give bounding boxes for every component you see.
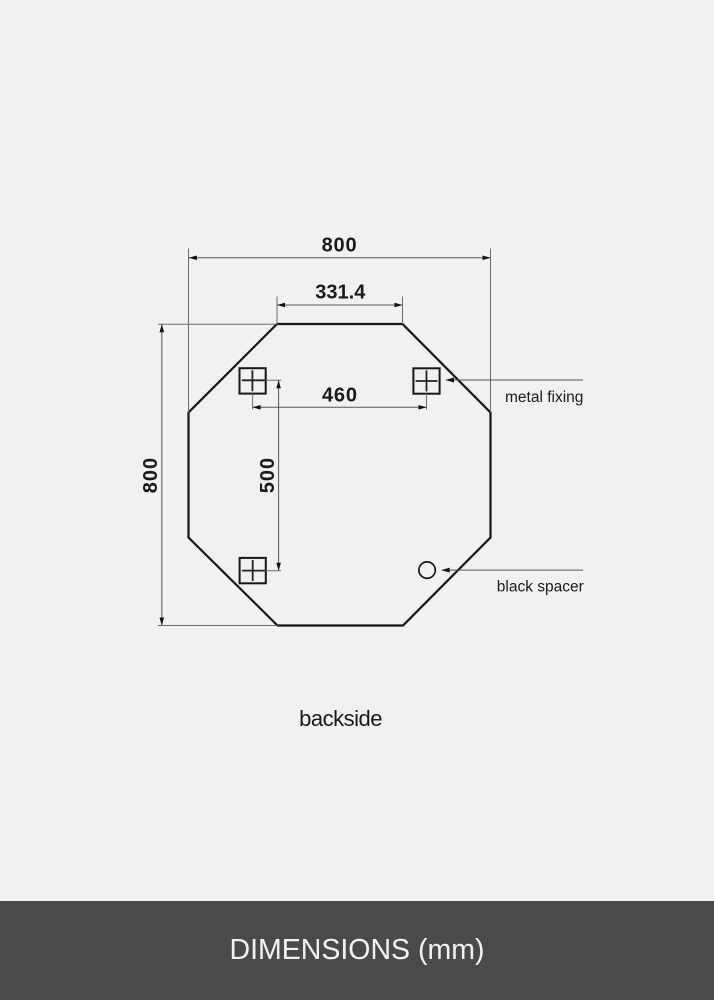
svg-text:800: 800 — [140, 457, 162, 493]
svg-text:black spacer: black spacer — [497, 579, 584, 596]
svg-text:backside: backside — [299, 706, 382, 731]
svg-text:metal fixing: metal fixing — [505, 389, 583, 406]
svg-text:800: 800 — [322, 235, 358, 257]
svg-text:500: 500 — [257, 457, 279, 493]
svg-text:460: 460 — [322, 385, 358, 407]
svg-text:331.4: 331.4 — [315, 282, 366, 304]
